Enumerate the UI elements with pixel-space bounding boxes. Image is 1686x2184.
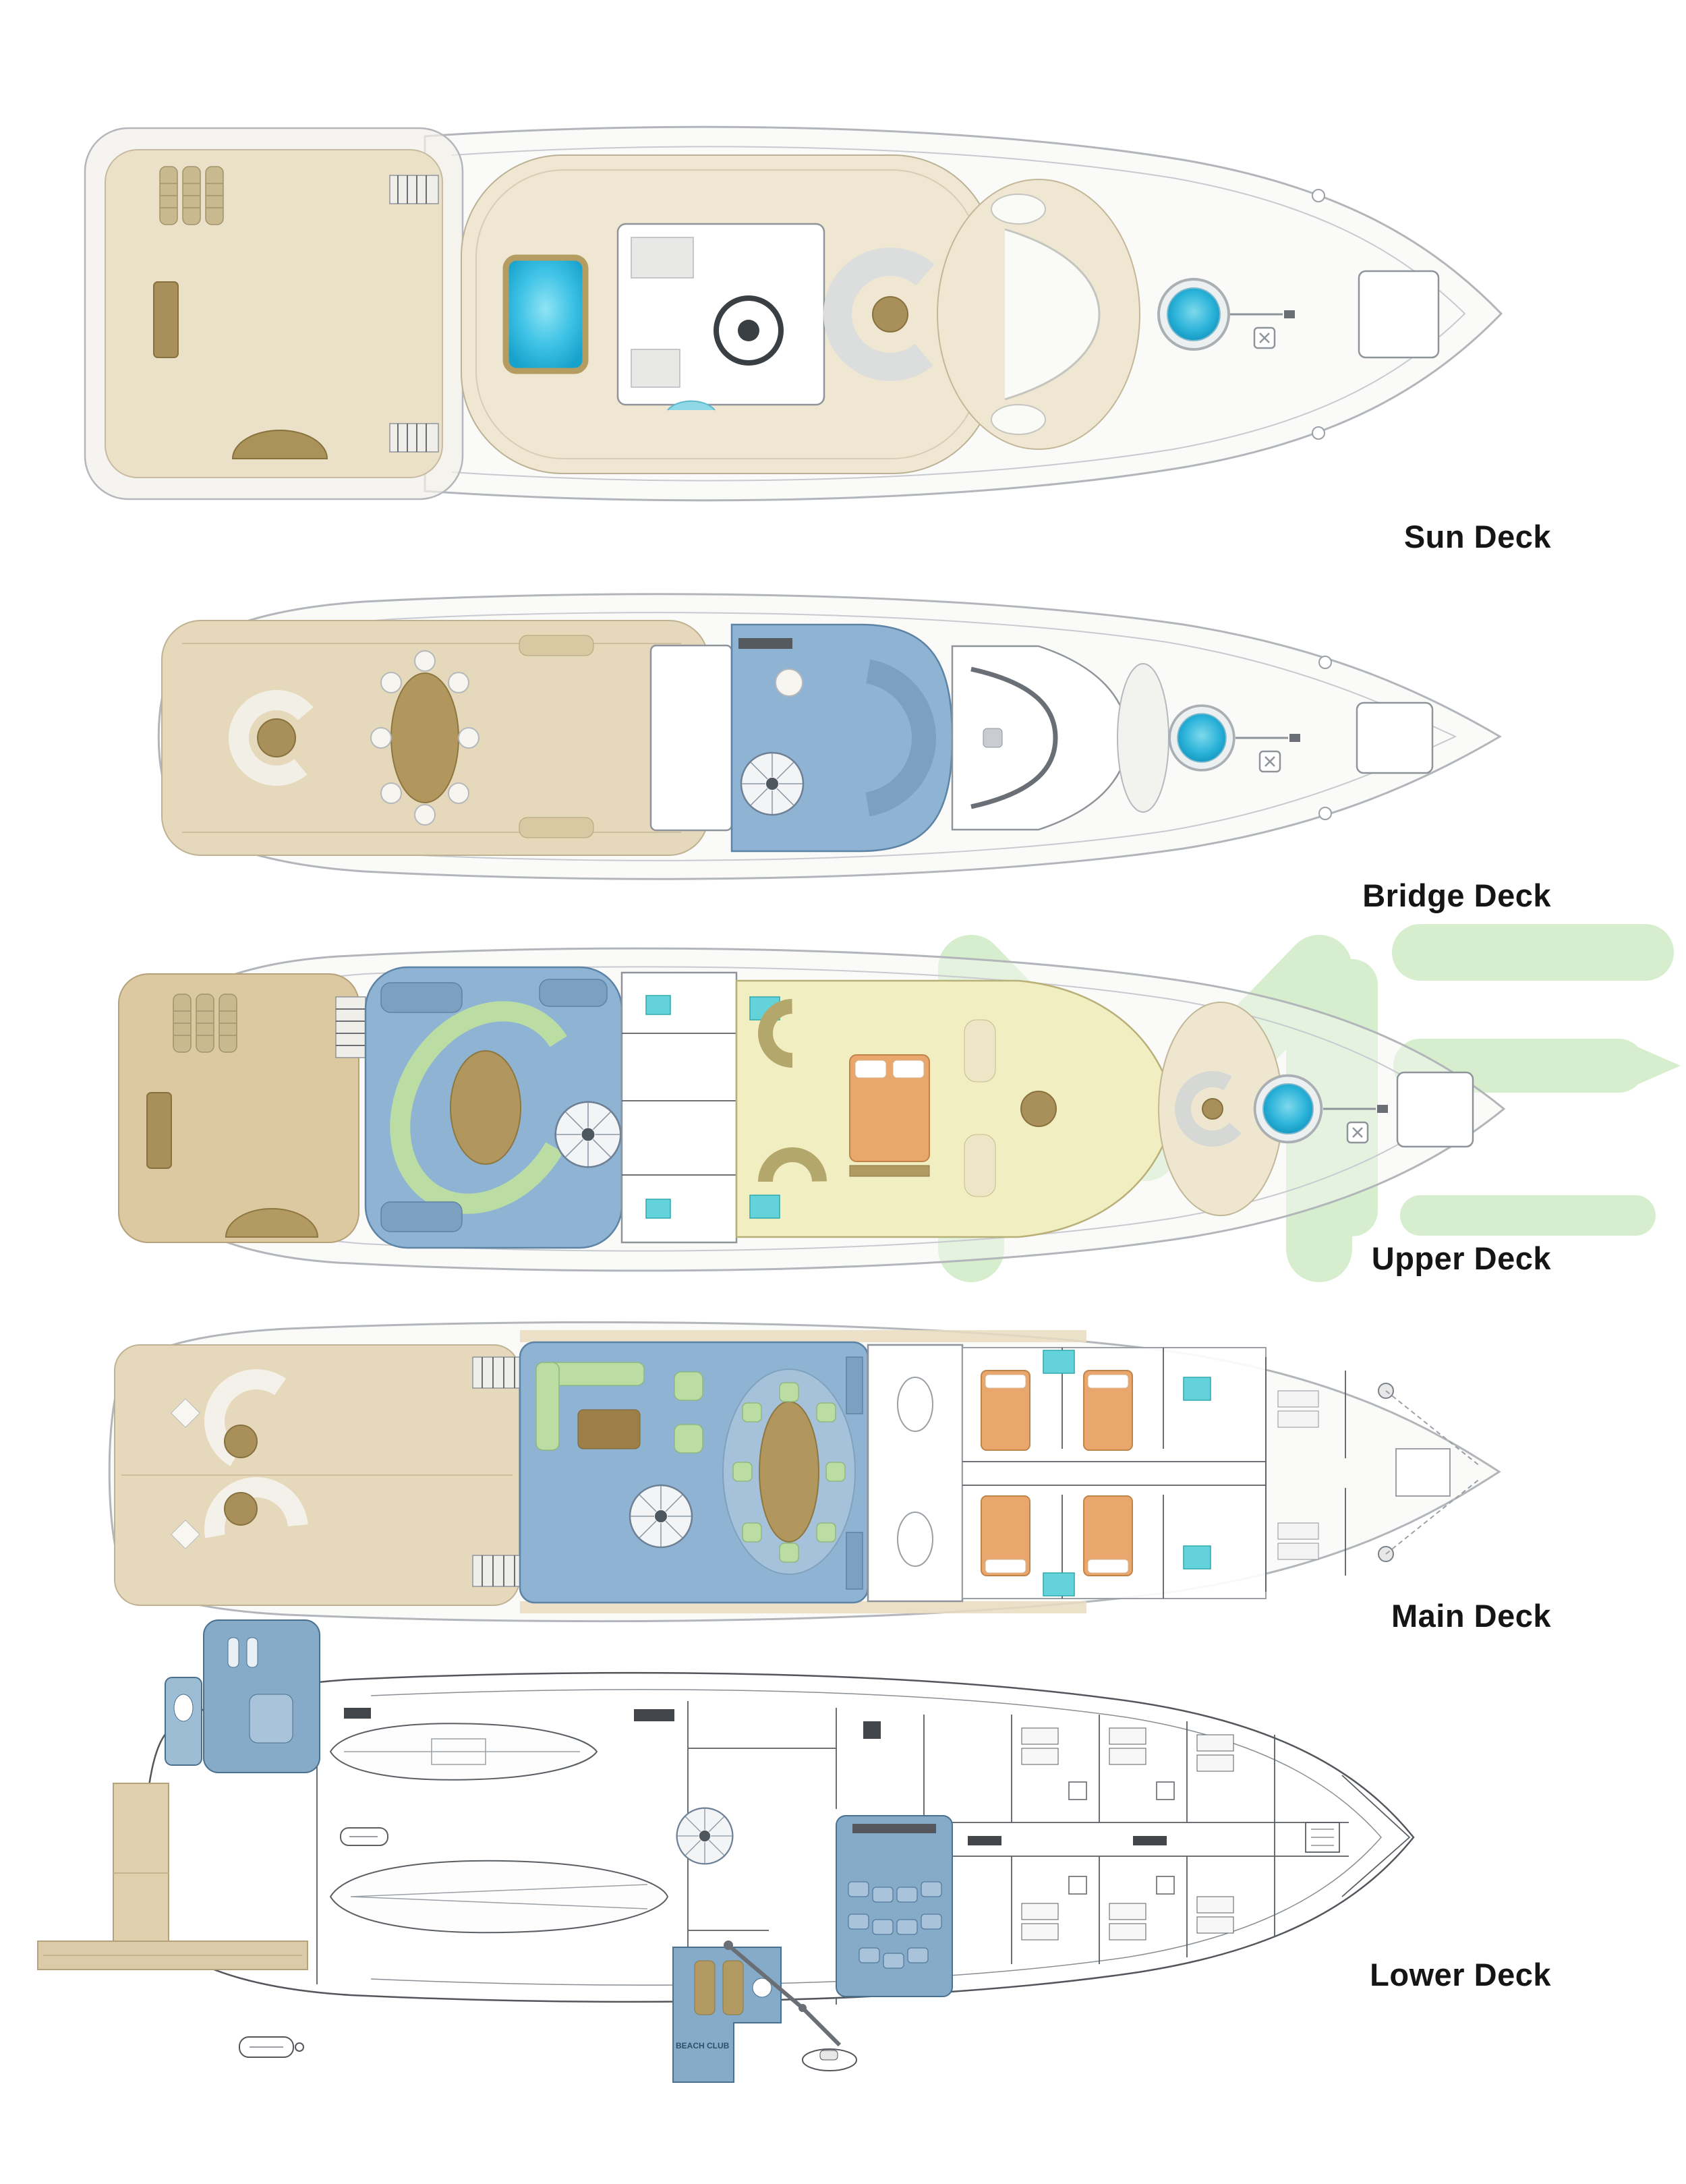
lounge-table (450, 1051, 521, 1164)
cinema-screen (852, 1824, 936, 1833)
suite-bath-icon (750, 1195, 780, 1218)
coffee-table (578, 1410, 640, 1449)
cinema-room (836, 1816, 952, 1996)
spiral-staircase-icon (630, 1485, 692, 1547)
jacuzzi-icon (1169, 706, 1234, 770)
sun-loungers-icon (173, 994, 237, 1052)
foyer-table (898, 1377, 933, 1431)
deck-label-upper-deck: Upper Deck (1372, 1240, 1551, 1277)
side-table (147, 1093, 171, 1168)
round-table (225, 1425, 257, 1458)
deck-label-main-deck: Main Deck (1391, 1597, 1551, 1634)
foyer-table (898, 1512, 933, 1566)
bow-hatch (1359, 271, 1438, 357)
round-table (225, 1493, 257, 1525)
bench (519, 635, 593, 656)
spiral-staircase-icon (677, 1808, 733, 1864)
watermark-letter-e-point (1619, 1039, 1681, 1093)
deck-label-lower-deck: Lower Deck (1370, 1956, 1551, 1993)
shower-icon (646, 1199, 670, 1218)
chaise (964, 1020, 995, 1082)
armchair (674, 1425, 703, 1453)
lower-deck-plan: BEACH CLUB (27, 1613, 1443, 2086)
corridor (622, 973, 736, 1242)
dining-table (391, 673, 459, 803)
beach-club-label: BEACH CLUB (676, 2041, 730, 2050)
stairs-icon (336, 997, 366, 1058)
mast-platform (1117, 664, 1169, 812)
deck-label-bridge-deck: Bridge Deck (1362, 877, 1551, 914)
card-table (776, 669, 803, 696)
main-deck-plan (64, 1310, 1507, 1634)
lounger-icon (723, 1961, 743, 2015)
cocktail-table (873, 297, 908, 332)
deck-label-sun-deck: Sun Deck (1404, 518, 1551, 555)
chaise (964, 1134, 995, 1197)
bridge-deck-plan (74, 581, 1511, 892)
sideboard (846, 1532, 863, 1589)
lounger-icon (695, 1961, 715, 2015)
bench (519, 817, 593, 838)
beach-club: BEACH CLUB (673, 1947, 781, 2082)
sun-loungers-icon (160, 167, 223, 225)
jetski-icon (341, 1828, 388, 1845)
jetski-launch-icon (803, 2049, 856, 2071)
captain-chair (983, 728, 1002, 747)
lobby (651, 645, 732, 830)
jacuzzi-icon (1255, 1076, 1322, 1143)
shower-icon (646, 996, 670, 1014)
bow-hatch (1397, 1072, 1473, 1147)
dinghy-icon (239, 2037, 303, 2057)
jacuzzi-icon (1159, 279, 1229, 349)
master-suite (736, 981, 1175, 1237)
sideboard (846, 1357, 863, 1414)
side-table (154, 282, 178, 357)
salon-sofa (536, 1362, 559, 1450)
bow-hatch (1357, 703, 1432, 773)
spiral-staircase-icon (556, 1102, 621, 1168)
yacht-deck-plans-page: BEACH CLUB (0, 0, 1686, 2184)
vanity-table (1021, 1091, 1056, 1126)
armchair (674, 1372, 703, 1400)
side-deck (520, 1330, 1086, 1342)
round-table (258, 719, 295, 757)
sun-deck-plan (74, 108, 1511, 519)
tv-icon (738, 638, 792, 649)
dining-table (759, 1402, 819, 1542)
sun-deck-pool (506, 258, 585, 371)
spiral-staircase-icon (741, 753, 803, 815)
upper-deck-plan (74, 932, 1511, 1283)
